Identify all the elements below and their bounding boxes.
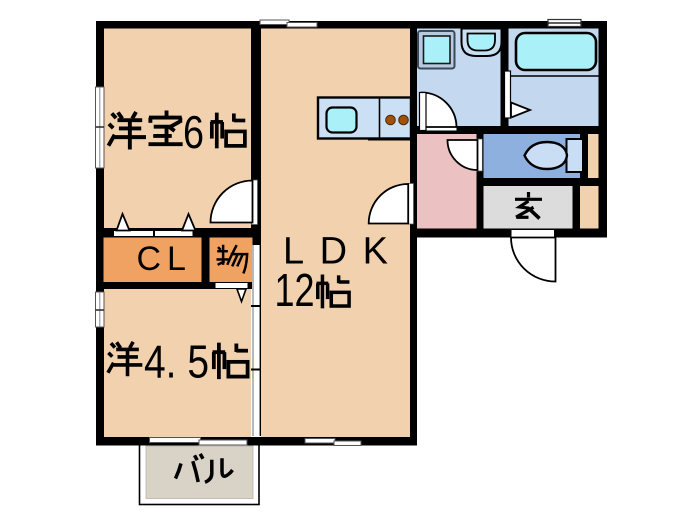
svg-text:4. 5: 4. 5	[144, 336, 209, 388]
svg-text:6: 6	[183, 106, 204, 158]
svg-text:12: 12	[275, 264, 315, 316]
svg-text:CL: CL	[137, 240, 192, 278]
